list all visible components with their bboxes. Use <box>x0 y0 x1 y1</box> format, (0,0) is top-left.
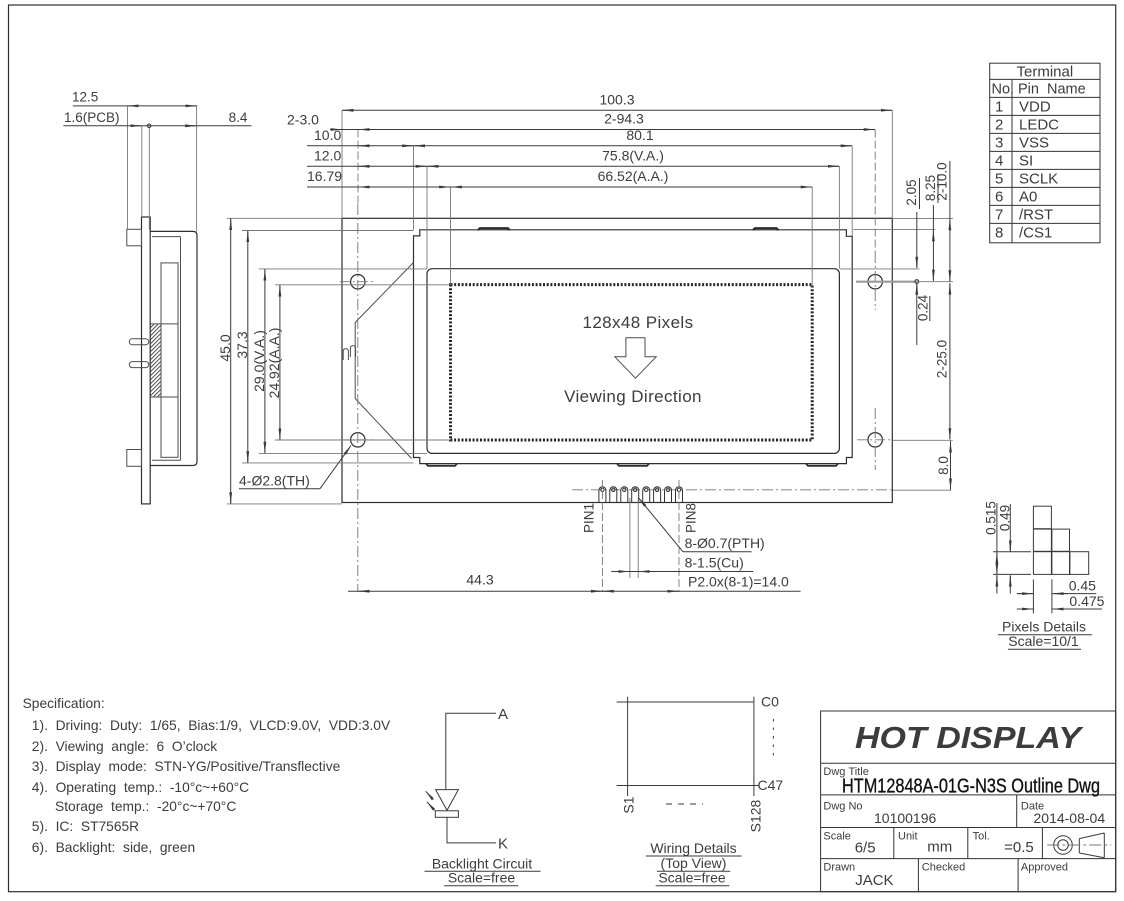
svg-text:0.475: 0.475 <box>1069 593 1104 609</box>
svg-text:2-3.0: 2-3.0 <box>287 112 319 128</box>
svg-text:3: 3 <box>995 135 1003 152</box>
svg-text:Checked: Checked <box>922 862 965 874</box>
svg-text:P2.0x(8-1)=14.0: P2.0x(8-1)=14.0 <box>688 574 789 590</box>
svg-text:2014-08-04: 2014-08-04 <box>1034 810 1106 826</box>
svg-text:=0.5: =0.5 <box>1004 839 1034 856</box>
svg-text:VSS: VSS <box>1019 135 1049 152</box>
svg-text:VDD: VDD <box>1019 99 1051 116</box>
svg-text:PIN1: PIN1 <box>582 503 597 533</box>
svg-text:Storage temp.: -20°c~+70°C: Storage temp.: -20°c~+70°C <box>55 799 236 814</box>
svg-text:1: 1 <box>995 99 1003 116</box>
svg-text:Dwg No: Dwg No <box>823 801 862 813</box>
svg-text:44.3: 44.3 <box>466 572 493 588</box>
svg-text:2-94.3: 2-94.3 <box>604 111 644 127</box>
svg-text:Scale: Scale <box>823 831 851 843</box>
svg-text:Approved: Approved <box>1021 862 1068 874</box>
svg-text:C47: C47 <box>758 777 784 793</box>
svg-text:37.3: 37.3 <box>234 331 250 358</box>
svg-text:2: 2 <box>995 117 1003 134</box>
svg-text:HOT DISPLAY: HOT DISPLAY <box>855 720 1085 755</box>
svg-text:8.0: 8.0 <box>936 456 951 475</box>
svg-text:K: K <box>498 836 508 853</box>
svg-text:A: A <box>498 706 508 723</box>
svg-text:8-Ø0.7(PTH): 8-Ø0.7(PTH) <box>685 535 765 551</box>
svg-text:1). Driving: Duty: 1/65, B: 1). Driving: Duty: 1/65, Bias:1/9, VLCD:… <box>32 718 391 733</box>
svg-text:2.05: 2.05 <box>904 179 919 205</box>
svg-text:7: 7 <box>995 207 1003 224</box>
svg-text:5: 5 <box>995 171 1003 188</box>
svg-text:1.6(PCB): 1.6(PCB) <box>64 110 120 125</box>
svg-text:0.45: 0.45 <box>1069 578 1096 594</box>
svg-text:12.5: 12.5 <box>72 90 98 105</box>
svg-text:Terminal: Terminal <box>1017 64 1074 81</box>
svg-text:mm: mm <box>927 839 952 856</box>
svg-text:SCLK: SCLK <box>1019 171 1058 188</box>
svg-text:0.49: 0.49 <box>997 505 1012 531</box>
svg-text:128x48 Pixels: 128x48 Pixels <box>582 313 693 332</box>
svg-text:Unit: Unit <box>898 831 918 843</box>
svg-text:Specification:: Specification: <box>23 696 105 711</box>
svg-text:Scale=10/1: Scale=10/1 <box>1008 633 1079 649</box>
svg-text:12.0: 12.0 <box>314 147 341 163</box>
svg-text:JACK: JACK <box>855 872 893 889</box>
svg-text:No.: No. <box>992 82 1015 98</box>
svg-text:4: 4 <box>995 153 1003 170</box>
svg-text:C0: C0 <box>761 694 779 710</box>
svg-text:80.1: 80.1 <box>626 127 653 143</box>
svg-text:Wiring Details: Wiring Details <box>650 840 736 856</box>
svg-text:2-10.0: 2-10.0 <box>934 162 949 200</box>
svg-text:6: 6 <box>995 189 1003 206</box>
svg-text:8: 8 <box>995 225 1003 242</box>
svg-text:S128: S128 <box>747 799 763 832</box>
svg-text:/CS1: /CS1 <box>1019 225 1052 242</box>
svg-text:/RST: /RST <box>1019 207 1053 224</box>
svg-text:Tol.: Tol. <box>973 831 990 843</box>
svg-text:100.3: 100.3 <box>599 92 634 108</box>
svg-text:A0: A0 <box>1019 189 1037 206</box>
svg-text:66.52(A.A.): 66.52(A.A.) <box>598 168 669 184</box>
svg-text:16.79: 16.79 <box>307 168 342 184</box>
svg-text:HTM12848A-01G-N3S Outline Dwg: HTM12848A-01G-N3S Outline Dwg <box>842 776 1100 798</box>
svg-text:Scale=free: Scale=free <box>658 870 726 886</box>
svg-text:3). Display mode: STN-YG/Po: 3). Display mode: STN-YG/Positive/Transf… <box>32 759 341 774</box>
svg-text:S1: S1 <box>621 796 637 813</box>
svg-text:4). Operating temp.: -10°c~: 4). Operating temp.: -10°c~+60°C <box>32 780 249 795</box>
svg-text:Pin Name: Pin Name <box>1018 82 1086 98</box>
svg-text:PIN8: PIN8 <box>684 503 699 533</box>
svg-text:8-1.5(Cu): 8-1.5(Cu) <box>685 555 744 571</box>
svg-text:Viewing Direction: Viewing Direction <box>564 387 702 406</box>
svg-text:2). Viewing angle: 6 O’clo: 2). Viewing angle: 6 O’clock <box>32 739 217 754</box>
svg-text:Scale=free: Scale=free <box>448 870 516 886</box>
svg-text:10100196: 10100196 <box>874 810 937 826</box>
svg-text:75.8(V.A.): 75.8(V.A.) <box>602 147 664 163</box>
svg-text:SI: SI <box>1019 153 1033 170</box>
svg-text:45.0: 45.0 <box>217 334 233 361</box>
svg-text:10.0: 10.0 <box>314 127 341 143</box>
svg-text:5). IC: ST7565R: 5). IC: ST7565R <box>32 819 139 834</box>
svg-text:24.92(A.A.): 24.92(A.A.) <box>266 328 282 399</box>
svg-text:LEDC: LEDC <box>1019 117 1059 134</box>
svg-text:29.0(V.A.): 29.0(V.A.) <box>251 330 267 392</box>
svg-text:6/5: 6/5 <box>855 840 876 857</box>
svg-text:2-25.0: 2-25.0 <box>935 340 950 378</box>
svg-text:4-Ø2.8(TH): 4-Ø2.8(TH) <box>239 473 310 489</box>
svg-text:Drawn: Drawn <box>823 862 855 874</box>
svg-text:0.24: 0.24 <box>916 294 931 321</box>
svg-text:6). Backlight: side, green: 6). Backlight: side, green <box>32 840 195 855</box>
svg-text:8.4: 8.4 <box>229 110 248 125</box>
